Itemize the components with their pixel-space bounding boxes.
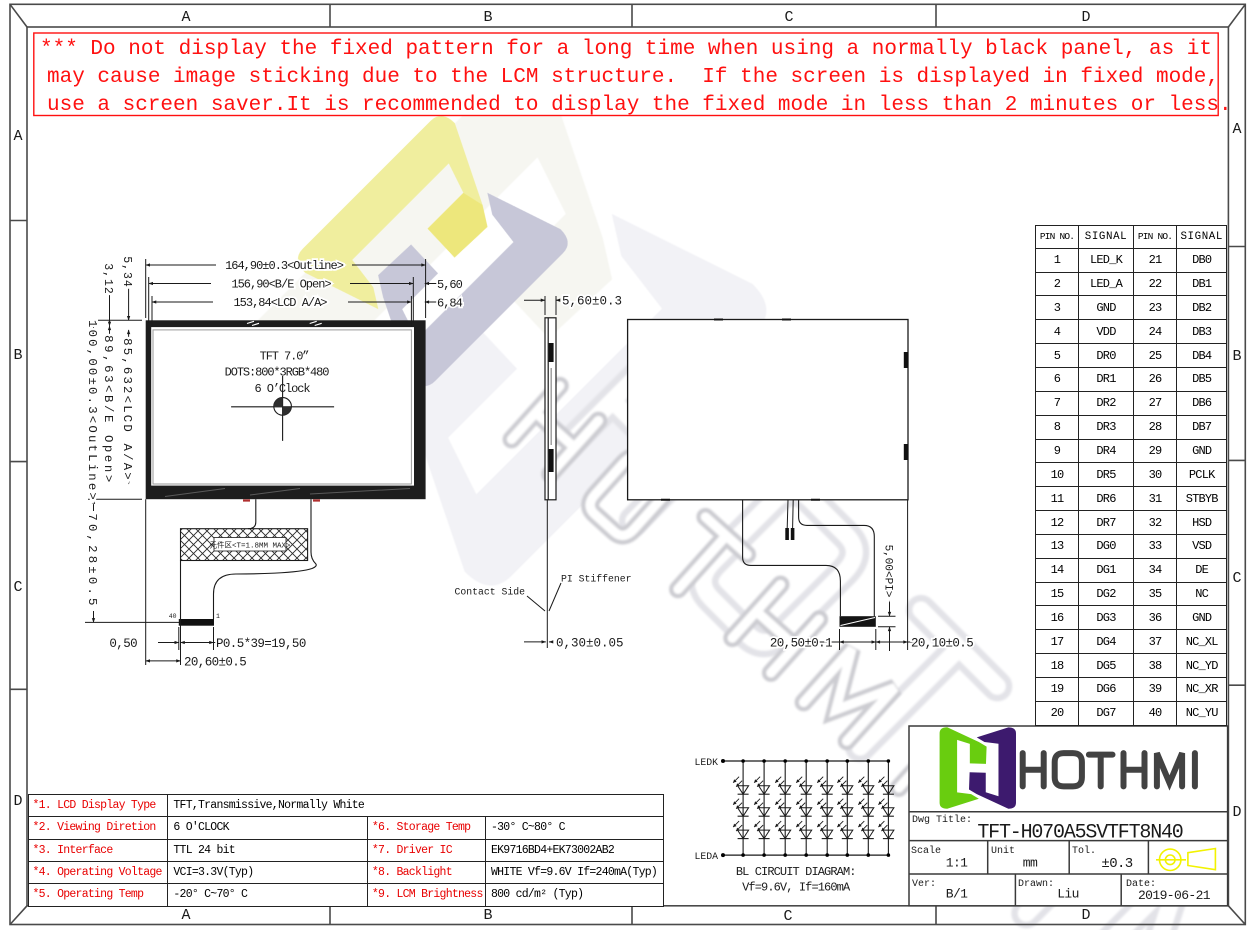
svg-text:2019-06-21: 2019-06-21 [1138,888,1211,903]
svg-text:0,50: 0,50 [109,637,137,651]
svg-text:85,632<LCD A/A>: 85,632<LCD A/A> [120,338,134,482]
svg-text:156,90<B/E Open>: 156,90<B/E Open> [231,277,331,291]
svg-text:±0.3: ±0.3 [1101,856,1132,872]
svg-text:164,90±0.3<Outline>: 164,90±0.3<Outline> [225,259,344,273]
svg-text:LEDK: LEDK [694,757,718,768]
svg-text:3,12: 3,12 [101,263,114,295]
svg-text:Contact Side: Contact Side [454,587,525,598]
svg-text:20,50±0.1: 20,50±0.1 [770,636,832,650]
svg-text:B: B [1232,348,1241,365]
svg-text:0,30±0.05: 0,30±0.05 [556,636,624,650]
svg-text:D: D [1232,804,1241,821]
svg-text:D: D [1081,907,1090,924]
svg-text:Liu: Liu [1057,886,1079,901]
svg-text:B: B [483,9,492,26]
svg-text:mm: mm [1023,855,1038,870]
svg-text:C: C [784,9,793,26]
svg-text:20,10±0.5: 20,10±0.5 [911,636,973,650]
svg-text:89,63<B/E Open>: 89,63<B/E Open> [101,335,115,485]
svg-text:5,00<PI>: 5,00<PI> [881,545,893,598]
svg-text:PI Stiffener: PI Stiffener [561,574,632,585]
svg-text:TFT 7.0”: TFT 7.0” [260,350,310,364]
svg-text:DOTS:800*3RGB*480: DOTS:800*3RGB*480 [225,366,330,380]
svg-text:20,60±0.5: 20,60±0.5 [184,655,246,669]
svg-text:1:1: 1:1 [946,855,968,870]
svg-text:6,84: 6,84 [437,296,463,310]
svg-text:Scale: Scale [911,845,941,857]
svg-text:P0.5*39=19,50: P0.5*39=19,50 [216,637,306,651]
svg-text:LEDA: LEDA [694,851,718,862]
svg-text:Ver:: Ver: [912,879,936,890]
svg-text:A: A [181,907,190,924]
svg-text:TFT-H070A5SVTFT8N40: TFT-H070A5SVTFT8N40 [977,822,1182,845]
svg-text:B: B [13,347,22,364]
svg-text:Tol.: Tol. [1072,845,1096,857]
svg-text:5,34: 5,34 [120,256,133,288]
svg-text:40: 40 [169,613,177,620]
svg-text:D: D [13,793,22,810]
svg-text:Unit: Unit [991,845,1015,857]
svg-text:1: 1 [216,613,220,620]
svg-text:100,00±0.3<OutLine>: 100,00±0.3<OutLine> [85,320,99,502]
svg-text:Drawn:: Drawn: [1018,879,1054,890]
svg-text:B: B [483,907,492,924]
svg-text:A: A [13,128,22,145]
svg-text:B/1: B/1 [946,886,968,901]
svg-text:A: A [181,9,190,26]
svg-text:Vf=9.6V, If=160mA: Vf=9.6V, If=160mA [742,881,851,895]
svg-text:153,84<LCD A/A>: 153,84<LCD A/A> [233,296,327,310]
svg-text:BL CIRCUIT DIAGRAM:: BL CIRCUIT DIAGRAM: [736,865,856,879]
svg-text:C: C [1232,570,1241,587]
svg-text:A: A [1232,121,1241,138]
svg-text:C: C [13,579,22,596]
svg-text:Dwg Title:: Dwg Title: [912,814,972,826]
svg-text:70,28±0.5: 70,28±0.5 [85,513,99,608]
svg-text:C: C [783,908,792,925]
svg-text:D: D [1081,9,1090,26]
svg-text:5,60: 5,60 [437,278,463,292]
svg-text:5,60±0.3: 5,60±0.3 [562,295,622,309]
